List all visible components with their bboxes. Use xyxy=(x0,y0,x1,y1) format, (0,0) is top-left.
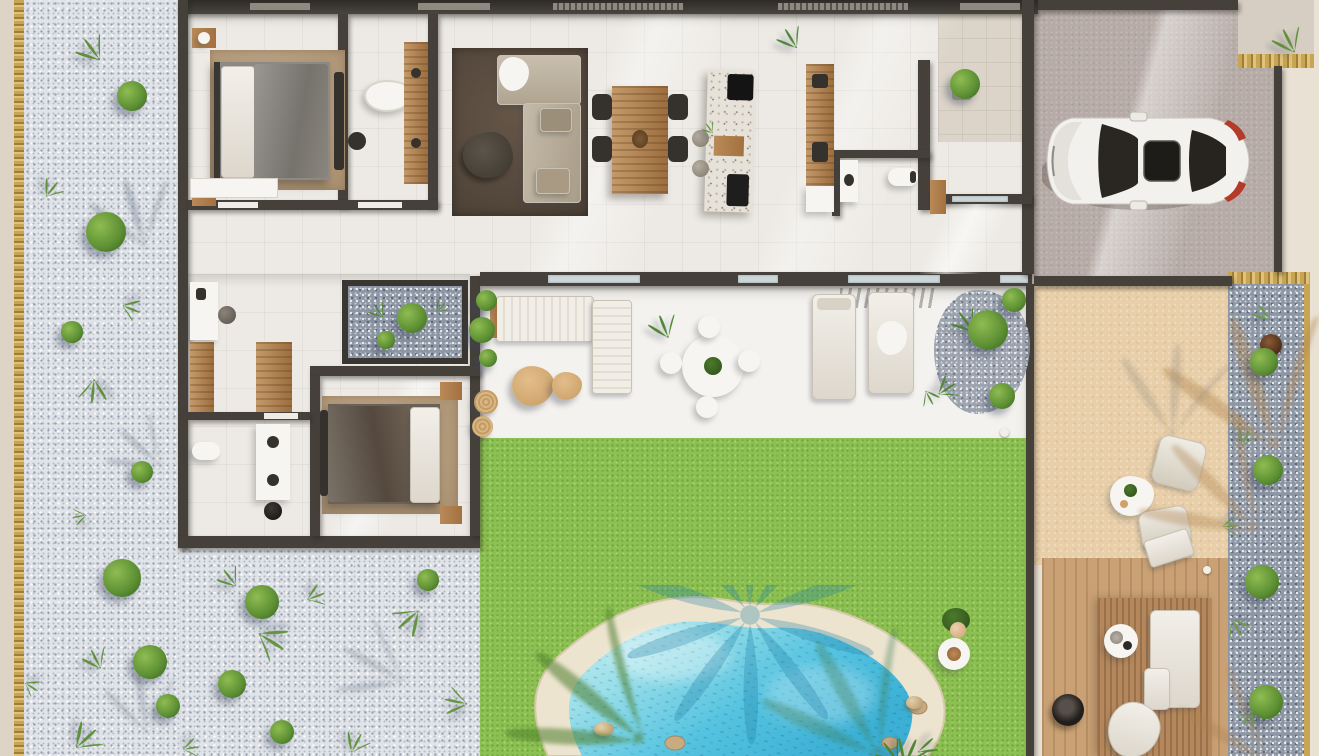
courtyard-plant xyxy=(432,280,464,312)
shrub xyxy=(218,670,246,698)
table-stone xyxy=(1110,631,1123,644)
wardrobe xyxy=(190,342,214,412)
palm-plant xyxy=(70,684,134,748)
sliding-glass-door xyxy=(548,275,640,283)
shower-stool xyxy=(264,502,282,520)
sunroof xyxy=(1144,141,1180,181)
table-lamp xyxy=(198,32,210,44)
bath-vanity xyxy=(404,42,428,184)
entry-patio-plant xyxy=(950,69,980,99)
entry-console xyxy=(930,180,946,214)
table-decor xyxy=(947,647,961,661)
kitchen-island xyxy=(704,69,756,212)
bedroom2-bed xyxy=(328,404,440,504)
sofa-pillow xyxy=(540,108,572,132)
bed-bench xyxy=(320,410,328,496)
sun-lounger xyxy=(868,292,914,394)
counter-appliance xyxy=(812,74,828,88)
windshield xyxy=(1098,124,1138,198)
deck-sofa-ottoman xyxy=(1144,668,1170,710)
side-mirror xyxy=(1130,112,1147,121)
master-bed xyxy=(214,62,330,180)
shrub xyxy=(245,585,279,619)
bed-pillows xyxy=(410,407,440,503)
table-plant xyxy=(1124,484,1137,497)
deck-side-table xyxy=(1104,624,1138,658)
palm-plant xyxy=(44,4,100,60)
built-in-closet xyxy=(190,178,278,198)
left-gold-pebble-wall xyxy=(14,0,24,756)
wall-top xyxy=(178,0,1038,14)
wall-left xyxy=(178,0,188,548)
sand-terrace xyxy=(1034,284,1232,565)
lawn-ball xyxy=(950,622,966,638)
cutting-board xyxy=(714,136,745,157)
window-top xyxy=(553,3,683,10)
bar-stool xyxy=(692,160,709,177)
shrub xyxy=(270,720,294,744)
planter-plant xyxy=(1245,565,1279,599)
rattan-pouf xyxy=(472,416,493,437)
floor-lamp xyxy=(1000,428,1009,437)
sofa-pillow xyxy=(536,168,570,194)
wall-kitchen xyxy=(918,60,930,210)
kitchen-plant xyxy=(687,107,713,133)
nightstand xyxy=(440,506,462,524)
bath2-vanity xyxy=(256,424,290,500)
window-top xyxy=(960,3,1020,10)
bed-duvet xyxy=(328,406,410,502)
palm-plant xyxy=(55,615,108,668)
table-cup xyxy=(1120,500,1128,508)
terrace-plant xyxy=(923,281,973,331)
desk-chair xyxy=(218,306,236,324)
floor-plan-render xyxy=(0,0,1319,756)
sliding-glass-door xyxy=(1000,275,1028,283)
table-stone xyxy=(1123,641,1132,650)
dining-chair xyxy=(592,136,612,162)
wall-wc-top xyxy=(832,150,930,158)
lounger-pillow xyxy=(817,298,851,310)
terrace-plant xyxy=(939,351,986,398)
planter-plant xyxy=(1250,348,1278,376)
terrace-chair xyxy=(696,396,718,418)
indoor-palm xyxy=(749,0,801,48)
door-opening xyxy=(264,413,298,419)
bath2-toilet xyxy=(192,442,220,460)
dining-chair xyxy=(668,136,688,162)
pool-rock xyxy=(665,736,685,750)
wall-top-right xyxy=(1038,0,1238,10)
wc-cistern xyxy=(910,171,916,183)
front-door xyxy=(952,196,1008,202)
planter-plant xyxy=(1253,455,1283,485)
shrub xyxy=(103,559,140,596)
wall-bath2-top xyxy=(188,412,310,420)
terrace-plant xyxy=(1002,288,1026,312)
lawn-side-table xyxy=(938,638,970,670)
terrace-edge-plant xyxy=(476,290,497,311)
wall-bed2-top xyxy=(310,366,480,376)
table-plant xyxy=(704,357,722,375)
deck-wall-lamp xyxy=(1203,566,1211,574)
terrace-chair xyxy=(660,352,682,374)
right-boundary-wall xyxy=(1274,66,1282,272)
wall-right xyxy=(1022,0,1034,274)
wall-bed2-left xyxy=(310,376,320,536)
shrub xyxy=(417,569,439,591)
bed-headboard xyxy=(214,62,220,180)
terrace-chair xyxy=(738,350,760,372)
cooktop xyxy=(727,74,754,101)
palm-plant xyxy=(192,542,236,586)
basin xyxy=(411,138,421,148)
wc-basin xyxy=(840,160,858,202)
outdoor-sofa xyxy=(496,296,594,342)
desk-items xyxy=(196,288,206,300)
dining-chair xyxy=(668,94,688,120)
dining-table xyxy=(612,86,668,194)
basin xyxy=(267,436,279,448)
bed-pillows xyxy=(221,66,255,178)
terrace-chair xyxy=(698,316,720,338)
bed-duvet xyxy=(254,64,328,178)
window-top xyxy=(418,3,490,10)
wall-bath1-right xyxy=(428,14,438,206)
wall-sand-top xyxy=(1034,276,1232,286)
courtyard-plant xyxy=(377,331,395,349)
tall-cabinet xyxy=(806,186,834,212)
island-sink xyxy=(726,174,749,207)
wardrobe xyxy=(256,342,292,412)
wc-toilet xyxy=(888,168,918,186)
counter-appliance xyxy=(812,142,828,162)
terrace-plant xyxy=(921,391,959,429)
kitchen-wall-counter xyxy=(806,64,834,186)
terrace-edge-plant xyxy=(479,349,497,367)
bedroom-stool xyxy=(348,132,366,150)
planter-plant xyxy=(1230,280,1270,320)
corner-plant xyxy=(1240,0,1305,52)
shrub xyxy=(133,645,166,678)
bed-bench xyxy=(334,72,344,170)
wall-corridor xyxy=(188,200,438,210)
palm-plant xyxy=(361,611,424,674)
coffee-table xyxy=(463,132,513,178)
basin xyxy=(844,174,854,186)
planter-plant xyxy=(1227,619,1273,665)
sun-lounger xyxy=(812,294,856,400)
courtyard-plant xyxy=(349,283,383,317)
shrub xyxy=(61,321,82,342)
basin xyxy=(267,474,279,486)
table-centerpiece xyxy=(632,130,648,148)
sliding-glass-door xyxy=(738,275,778,283)
car xyxy=(1042,112,1254,210)
lounger-towel xyxy=(877,321,907,355)
door-opening xyxy=(358,202,402,208)
basin xyxy=(411,68,421,78)
shrub xyxy=(117,81,147,111)
nightstand xyxy=(440,382,462,400)
window-top xyxy=(250,3,310,10)
side-mirror xyxy=(1130,201,1147,210)
rattan-pouf xyxy=(474,390,498,414)
terrace-round-table xyxy=(682,335,744,397)
dining-chair xyxy=(592,94,612,120)
door-opening xyxy=(218,202,258,208)
fire-bowl xyxy=(1052,694,1084,726)
office-desk xyxy=(190,282,218,340)
